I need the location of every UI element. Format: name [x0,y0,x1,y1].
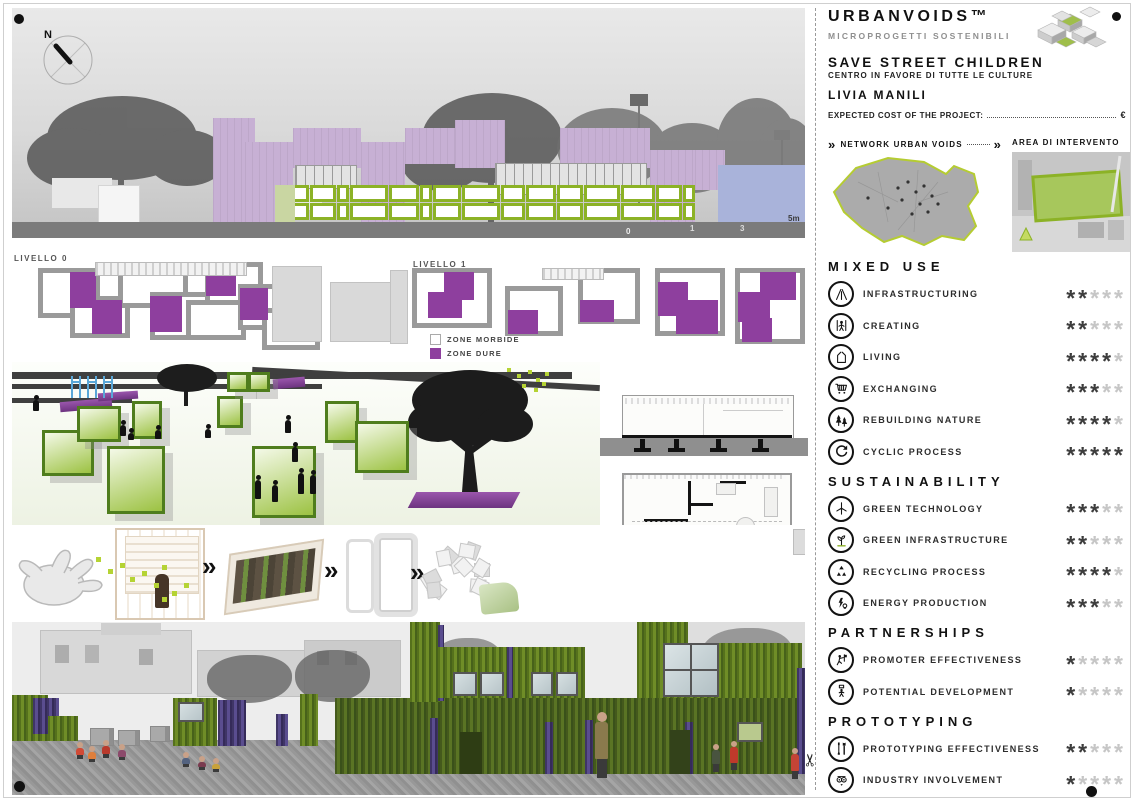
rating-label: EXCHANGING [863,384,938,394]
lime-dot [528,370,532,374]
on: ***** [1066,442,1126,468]
seed-dot [184,583,189,588]
rating-label: INDUSTRY INVOLVEMENT [863,775,1003,785]
furn [716,483,736,495]
cost-row: EXPECTED COST OF THE PROJECT: € [828,110,1126,120]
void-location-dot [914,190,917,193]
win [531,672,553,696]
on: *** [1066,499,1102,525]
seed-dot [162,597,167,602]
brand-title: URBANVOIDS™ [828,8,990,26]
decor [833,380,850,397]
decor [104,376,112,398]
person-silhouette [292,442,298,462]
rating-row: PROMOTER EFFECTIVENESS***** [828,647,1126,673]
rating-label: REBUILDING NATURE [863,415,982,425]
person-body [310,475,316,494]
win [178,702,204,722]
f [843,779,845,781]
support-foot [668,448,685,452]
decor [836,446,846,456]
on: **** [1066,348,1114,374]
abs [670,730,690,774]
section-cell [462,185,500,202]
decor [833,532,850,549]
building-volume [560,128,650,168]
isometric-blocks-logo [1028,4,1108,52]
rating-label: PROMOTER EFFECTIVENESS [863,655,1022,665]
street-person [88,746,96,762]
plaza-render [12,362,600,525]
void-location-dot [930,194,933,197]
void-location-dot [906,180,909,183]
hard-zone-room [150,296,182,332]
section-cell [433,185,461,202]
f [840,507,841,508]
on: ** [1066,316,1090,342]
f [842,742,845,745]
background-building [40,630,192,694]
decor [774,130,790,140]
scale-label: 0 [626,227,630,236]
on: ** [1066,285,1090,311]
person-silhouette [205,424,211,438]
off: ** [1102,594,1126,620]
person-silhouette [120,420,126,436]
section-cell [462,203,500,220]
rating-label: INFRASTRUCTURING [863,289,978,299]
decor [839,685,843,688]
furn [764,487,778,517]
street-person [712,744,720,772]
street-person [730,741,738,770]
rating-sidebar: URBANVOIDS™ MICROPROGETTI SOSTENIBILI SA… [828,0,1128,801]
lime-dot [545,372,549,376]
cost-label: EXPECTED COST OF THE PROJECT: [828,111,983,120]
decor [834,158,978,245]
section-cell [557,185,583,202]
off: * [1114,348,1126,374]
decor [837,535,844,540]
section-cell [389,203,419,220]
person-body [102,746,110,754]
decor [833,349,850,366]
hard-zone-room [742,318,772,342]
f [844,654,846,656]
hard-zone-room [92,300,122,334]
road-icon [828,281,854,307]
project-subtitle: CENTRO IN FAVORE DI TUTTE LE CULTURE [828,71,1033,80]
green-cube [248,372,270,392]
plan-level-label: LIVELLO 0 [14,254,68,263]
person-body [255,480,261,499]
scale-label: 5m [788,214,800,223]
green-cube [252,446,316,518]
green-cube [77,406,121,442]
person-silhouette [272,480,278,502]
person-body [285,420,291,433]
seed-dot [172,591,177,596]
presentation-board: 1 3 5m 0 N LIVELLO 0 LIVELLO 1 ZONE MORB… [0,0,1134,801]
win [480,672,504,696]
person-silhouette [128,428,134,440]
star-rating: ***** [1066,444,1126,467]
star-rating: ***** [1066,596,1126,619]
void-location-dot [936,202,939,205]
rating-row: EXCHANGING***** [828,376,1126,402]
support-stem [674,439,679,448]
person-silhouette [285,415,291,433]
hatch [625,398,789,404]
section-cell [656,185,682,202]
win [556,672,578,696]
building-volume [405,128,461,164]
rating-row: POTENTIAL DEVELOPMENT***** [828,679,1126,705]
rating-label: RECYCLING PROCESS [863,567,986,577]
wall [688,481,691,515]
person-legs [199,767,205,770]
rating-row: RECYCLING PROCESS***** [828,559,1126,585]
section-cell [310,185,336,202]
section-cell [501,185,525,202]
on: ** [1066,531,1090,557]
section-cell [526,185,556,202]
rating-row: CREATING***** [828,313,1126,339]
section-cell [337,203,349,220]
lime-dot [536,378,540,382]
person-body [595,722,608,759]
hand-illustration [12,537,112,615]
hard-zone-room [580,300,614,322]
energy-bulb-icon [828,590,854,616]
abs [703,404,704,436]
f [838,779,840,781]
scale-label: 3 [740,224,744,233]
off: **** [1078,651,1126,677]
rating-row: REBUILDING NATURE***** [828,407,1126,433]
section-cell [350,203,388,220]
legend-row: ZONE MORBIDE [430,334,520,345]
on: **** [1066,562,1114,588]
decor [1033,171,1122,221]
star-rating: ***** [1066,741,1126,764]
rating-label: PROTOTYPING EFFECTIVENESS [863,744,1040,754]
crate [150,726,170,742]
rating-row: ENERGY PRODUCTION***** [828,590,1126,616]
section-cell [389,185,419,202]
section-cell [526,203,556,220]
light-green-volume [275,185,295,222]
person-legs [597,759,607,778]
seed-dot [162,565,167,570]
rating-row: INDUSTRY INVOLVEMENT***** [828,767,1126,793]
area-map-header: AREA DI INTERVENTO [1012,138,1120,147]
decor [78,580,102,591]
support-foot [634,448,651,452]
section-cell [310,203,336,220]
seed-dot [154,583,159,588]
paper-scrap [426,581,442,598]
ground-strip [12,222,805,238]
off: *** [1090,285,1126,311]
person-legs [77,755,83,759]
person-body [120,425,126,436]
seed-dot [142,571,147,576]
decor [833,286,850,303]
abs [85,645,99,663]
trees-icon [828,407,854,433]
process-sequence: » » » [12,525,805,625]
decor [833,740,850,757]
f [836,566,845,576]
legend-label: ZONE MORBIDE [447,335,520,344]
decor [839,691,844,696]
off: ** [1102,499,1126,525]
f [838,392,840,394]
person-silhouette [310,470,316,494]
decor [19,550,102,605]
abs [233,548,316,604]
section-cell [584,185,620,202]
person-body [298,473,304,494]
cyclic-arrow-icon [828,439,854,465]
pwood [430,718,438,774]
street-person [102,740,110,758]
child-silhouette [155,574,169,608]
person-legs [183,764,189,767]
hard-zone-room [240,288,268,320]
decor [833,652,850,669]
wood [48,716,78,741]
white-module [98,185,140,224]
rating-label: LIVING [863,352,901,362]
rating-label: POTENTIAL DEVELOPMENT [863,687,1014,697]
person-silhouette [33,395,39,411]
author-name: LIVIA MANILI [828,88,927,102]
section-cell [420,185,432,202]
seed-dot [120,563,125,568]
support-foot [752,448,769,452]
street-person [198,756,206,770]
person-silhouette [155,425,161,439]
win [453,672,477,696]
ratings-panel: MIXED USEINFRASTRUCTURING*****CREATING**… [828,250,1126,799]
person-legs [713,764,719,771]
section-cells-band [275,185,703,222]
section-cell [683,185,695,202]
section-title: PROTOTYPING [828,714,1126,729]
decor [833,772,850,789]
rating-row: PROTOTYPING EFFECTIVENESS***** [828,736,1126,762]
green-cube [107,446,165,514]
rating-row: GREEN TECHNOLOGY***** [828,496,1126,522]
off: **** [1078,682,1126,708]
support-stem [716,439,721,448]
section-title: PARTNERSHIPS [828,625,1126,640]
cut-line [815,8,816,790]
chevron-icon: » [828,138,836,151]
on: *** [1066,379,1102,405]
on: **** [1066,411,1114,437]
scissors-icon: ✂ [801,753,821,767]
ground-band [600,438,808,456]
support-foot [710,448,727,452]
person-legs [89,759,95,762]
decor [833,443,850,460]
green-cube [355,421,409,473]
decor [408,370,533,492]
paper-scrap [458,543,476,560]
decor [839,385,843,390]
person-legs [119,757,125,760]
abs [460,732,482,774]
section-cell [433,203,461,220]
legend-row: ZONE DURE [430,348,502,359]
registration-dot [14,14,24,24]
decor [88,376,96,398]
registration-dot [1112,12,1121,21]
chevron-icon: » [324,557,338,583]
registration-dot [14,781,25,792]
frame-module [346,539,374,613]
section-cell [420,203,432,220]
currency-symbol: € [1120,110,1126,120]
wind-turbine-icon [828,496,854,522]
star-rating: ***** [1066,318,1126,341]
intervention-area-map [1012,152,1130,252]
person-legs [213,769,219,772]
green-cube [325,401,359,443]
star-rating: ***** [1066,381,1126,404]
person-body [76,748,84,755]
support-stem [758,439,763,448]
person-body [118,750,126,757]
section-cell [621,203,655,220]
abs [723,410,783,411]
section-cell [557,203,583,220]
person-silhouette [255,475,261,499]
decor [1078,222,1104,238]
decor [833,317,850,334]
network-map-label: NETWORK URBAN VOIDS [840,140,962,149]
street-person [212,758,220,772]
void-location-dot [886,206,889,209]
seed-dot [130,577,135,582]
seed-crate [115,528,205,620]
building-volume [455,120,505,168]
chevron-icon: » [202,553,216,579]
north-compass: N [30,20,100,90]
decor [1018,160,1032,210]
pwood [218,700,246,746]
person-body [128,433,134,440]
stair-strip [542,268,604,280]
chevron-icon: » [994,138,1002,151]
industry-icon [828,767,854,793]
person-silhouette [298,468,304,494]
decor [836,289,846,299]
decor [1033,171,1122,221]
seed-dot [108,569,113,574]
hard-zone-room [508,310,538,334]
person-body [791,754,799,771]
legend-label: ZONE DURE [447,349,502,358]
abs [139,649,153,665]
hatch [624,475,786,479]
lime-dot [542,382,546,386]
on: *** [1066,594,1102,620]
rating-label: CYCLIC PROCESS [863,447,963,457]
person-body [292,447,298,462]
star-rating: ***** [1066,501,1126,524]
star-rating: ***** [1066,564,1126,587]
off: * [1114,562,1126,588]
rating-row: CYCLIC PROCESS***** [828,439,1126,465]
tree-planter [408,492,521,508]
void-location-dot [866,196,869,199]
wood [300,694,318,746]
small-tree-silhouette [152,362,222,408]
decor [1108,220,1124,240]
scale-label: 1 [690,224,694,233]
lime-dot [517,374,521,378]
decor [72,376,80,398]
decor [1080,7,1100,17]
recycle-icon [828,559,854,585]
decor [833,683,850,700]
decor [833,563,850,580]
section-cell [337,185,349,202]
decor [838,746,839,755]
paper-scrap [436,549,453,567]
abs [632,521,782,522]
f [835,414,846,423]
rating-label: CREATING [863,321,921,331]
person-body [272,485,278,502]
void-location-dot [910,212,913,215]
f [843,392,845,394]
decor [833,595,850,612]
street-person [76,742,84,759]
rating-row: GREEN INFRASTRUCTURE***** [828,527,1126,553]
area-map-label: AREA DI INTERVENTO [1012,138,1120,147]
off: *** [1090,531,1126,557]
dotted-leader [987,116,1116,118]
void-location-dot [926,210,929,213]
green-cube [217,396,243,428]
off: *** [1090,739,1126,765]
section-cell [683,203,695,220]
section-drawing [622,395,794,439]
garden-tray [224,539,324,616]
rating-label: GREEN INFRASTRUCTURE [863,535,1009,545]
lime-dot [534,388,538,392]
star-rating: ***** [1066,413,1126,436]
off: ** [1102,379,1126,405]
decor [157,364,217,392]
section-cell [621,185,655,202]
void-location-dot [900,198,903,201]
lime-dot [507,368,511,372]
wall [691,503,713,506]
on: ** [1066,739,1090,765]
rating-row: INFRASTRUCTURING***** [828,281,1126,307]
win [737,722,763,742]
brand-subtitle: MICROPROGETTI SOSTENIBILI [828,31,1011,41]
shopping-cart-icon [828,376,854,402]
seed-dot [96,557,101,562]
building-volume [293,128,361,168]
